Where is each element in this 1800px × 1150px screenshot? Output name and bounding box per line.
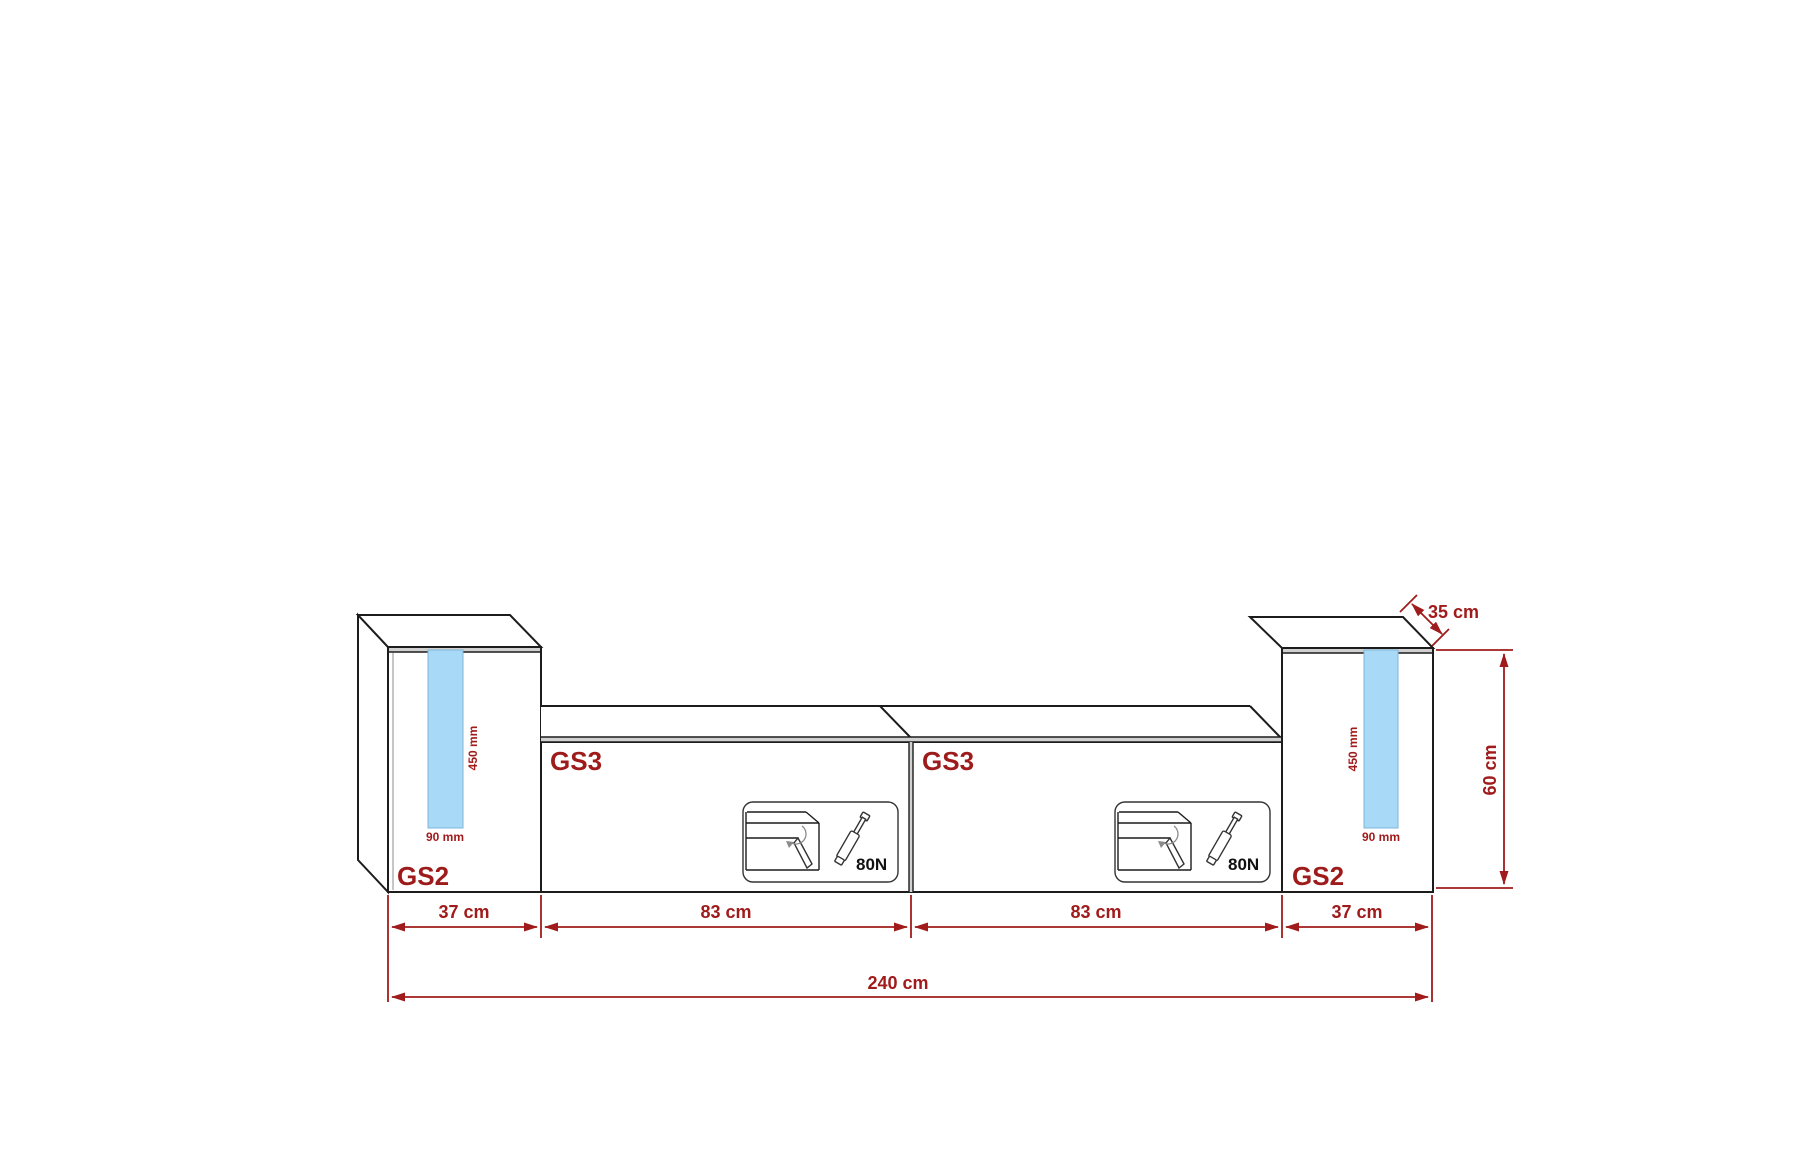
furniture-dimension-diagram: 450 mm 90 mm GS2 GS3 GS3 xyxy=(0,0,1800,1150)
gas-lift-force-right: 80N xyxy=(1228,855,1259,874)
cabinet-left-label: GS2 xyxy=(397,861,449,891)
total-width-label: 240 cm xyxy=(867,973,928,993)
gs3-right-label: GS3 xyxy=(922,746,974,776)
segment-2-label: 83 cm xyxy=(700,902,751,922)
cabinet-left-tall: 450 mm 90 mm GS2 xyxy=(358,615,541,892)
led-width-label-right: 90 mm xyxy=(1362,830,1400,844)
gas-lift-panel-left: 80N xyxy=(743,802,898,882)
extension-tick xyxy=(1400,595,1417,612)
depth-label: 35 cm xyxy=(1428,602,1479,622)
led-strip-left xyxy=(428,650,463,828)
height-dimension: 60 cm xyxy=(1436,650,1513,888)
height-label: 60 cm xyxy=(1480,744,1500,795)
cabinet-left-top-panel xyxy=(358,615,541,647)
led-strip-right xyxy=(1364,650,1398,828)
segment-1-label: 37 cm xyxy=(438,902,489,922)
segment-3-label: 83 cm xyxy=(1070,902,1121,922)
cabinet-right-top-panel xyxy=(1250,617,1433,648)
led-width-label-left: 90 mm xyxy=(426,830,464,844)
gs3-top-surface xyxy=(541,706,1282,738)
width-dimensions: 37 cm 83 cm 83 cm 37 cm 240 cm xyxy=(388,895,1432,1002)
gs3-left-label: GS3 xyxy=(550,746,602,776)
diagram-canvas: 450 mm 90 mm GS2 GS3 GS3 xyxy=(0,0,1800,1150)
segment-4-label: 37 cm xyxy=(1331,902,1382,922)
gas-lift-force-left: 80N xyxy=(856,855,887,874)
gs3-front-top-band xyxy=(541,737,1282,742)
cabinet-left-side-panel xyxy=(358,615,388,892)
gas-lift-panel-right: 80N xyxy=(1115,802,1270,882)
cabinet-left-front xyxy=(388,647,541,892)
led-length-label-left: 450 mm xyxy=(466,726,480,771)
led-length-label-right: 450 mm xyxy=(1346,727,1360,772)
cabinet-right-label: GS2 xyxy=(1292,861,1344,891)
